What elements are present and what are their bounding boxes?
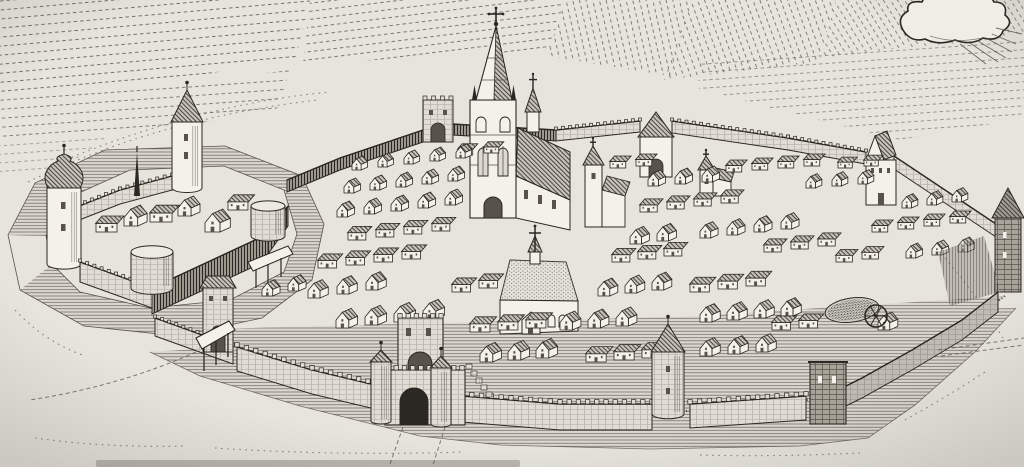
north-gate-tower	[423, 96, 453, 142]
castle-bastion-1	[131, 246, 173, 295]
castle-bastion-2	[251, 201, 285, 241]
southeast-corner-tower	[808, 362, 848, 424]
photo-shadow-strip	[96, 460, 520, 467]
engraved-town-map	[0, 0, 1024, 467]
town-engraving-svg	[0, 0, 1024, 467]
